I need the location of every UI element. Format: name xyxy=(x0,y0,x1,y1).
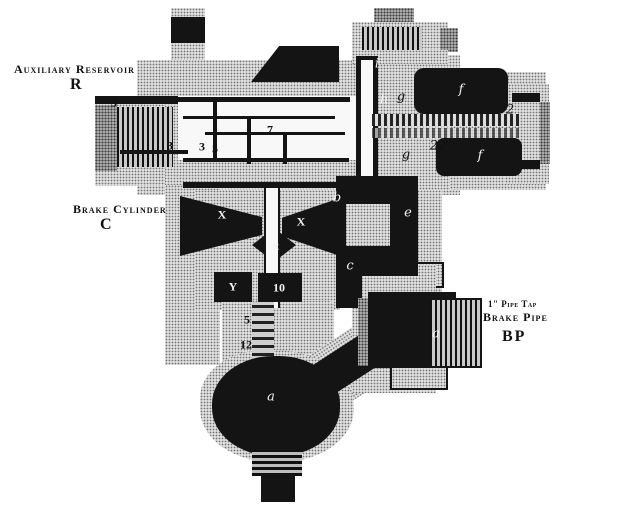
callout-x: X xyxy=(297,215,306,230)
callout-3: 3 xyxy=(167,139,173,154)
aux-reservoir-label: Auxiliary Reservoir xyxy=(14,62,135,77)
brake-pipe-label: Brake Pipe xyxy=(483,310,548,325)
callout-22: 22 xyxy=(430,139,447,154)
callout-10: 10 xyxy=(273,281,285,296)
callout-a: a xyxy=(432,327,440,342)
callout-x: x xyxy=(273,239,279,254)
triple-valve-cross-section-diagram: 33357ihggff222becXXxY10512aa Auxiliary R… xyxy=(0,0,640,505)
callout-h: h xyxy=(380,93,388,108)
callout-y: Y xyxy=(229,280,238,295)
callout-f: f xyxy=(478,149,483,164)
callout-b: b xyxy=(333,191,341,206)
callout-3: 3 xyxy=(111,96,117,111)
callout-i: i xyxy=(375,57,379,72)
callout-e: e xyxy=(404,206,412,221)
callout-2: 2 xyxy=(506,103,514,118)
callout-3: 3 xyxy=(199,140,205,155)
callout-5: 5 xyxy=(212,142,218,157)
callout-12: 12 xyxy=(240,338,252,353)
callout-7: 7 xyxy=(267,123,273,138)
brake-pipe-letter: BP xyxy=(502,328,526,346)
callout-c: c xyxy=(346,259,353,274)
callout-g: g xyxy=(402,148,410,163)
callout-5: 5 xyxy=(244,313,250,328)
callout-f: f xyxy=(459,83,464,98)
callout-x: X xyxy=(218,208,227,223)
aux-reservoir-letter: R xyxy=(70,76,84,94)
callout-g: g xyxy=(397,90,405,105)
pipe-tap-label: 1" Pipe Tap xyxy=(488,299,537,309)
callout-a: a xyxy=(267,390,275,405)
brake-cylinder-label: Brake Cylinder xyxy=(73,202,167,217)
brake-cylinder-letter: C xyxy=(100,216,114,234)
